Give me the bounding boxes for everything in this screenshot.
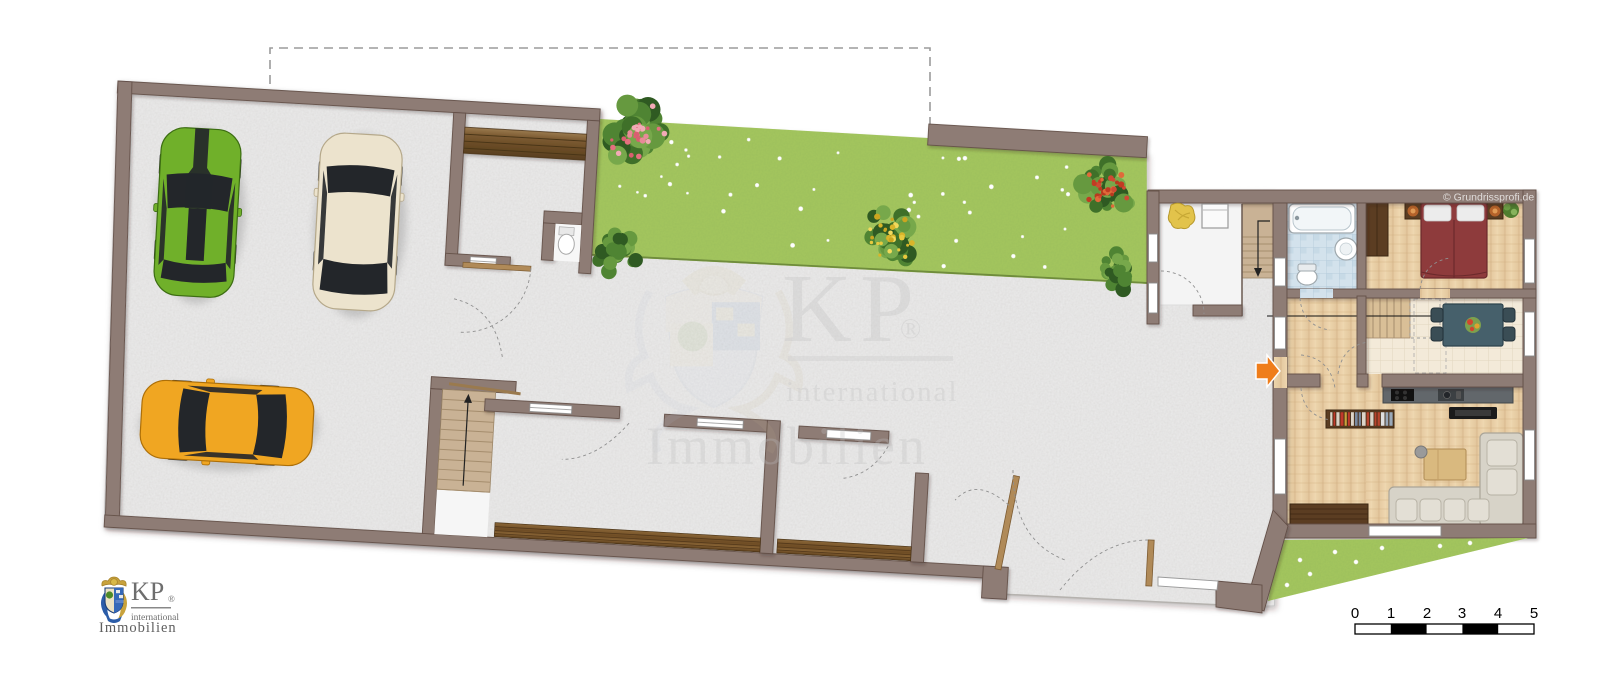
svg-text:Immobilien: Immobilien	[99, 620, 177, 636]
svg-text:5: 5	[1530, 605, 1538, 622]
svg-text:Immobilien: Immobilien	[646, 416, 928, 476]
svg-text:international: international	[786, 376, 959, 408]
svg-text:3: 3	[1458, 605, 1466, 622]
svg-text:KP: KP	[131, 577, 164, 606]
svg-text:0: 0	[1351, 605, 1359, 622]
svg-text:®: ®	[900, 314, 921, 345]
svg-text:4: 4	[1494, 605, 1502, 622]
svg-text:© Grundrissprofi.de: © Grundrissprofi.de	[1443, 192, 1534, 204]
svg-text:®: ®	[168, 594, 175, 604]
svg-text:1: 1	[1387, 605, 1395, 622]
svg-text:2: 2	[1423, 605, 1431, 622]
svg-text:KP: KP	[782, 255, 922, 362]
